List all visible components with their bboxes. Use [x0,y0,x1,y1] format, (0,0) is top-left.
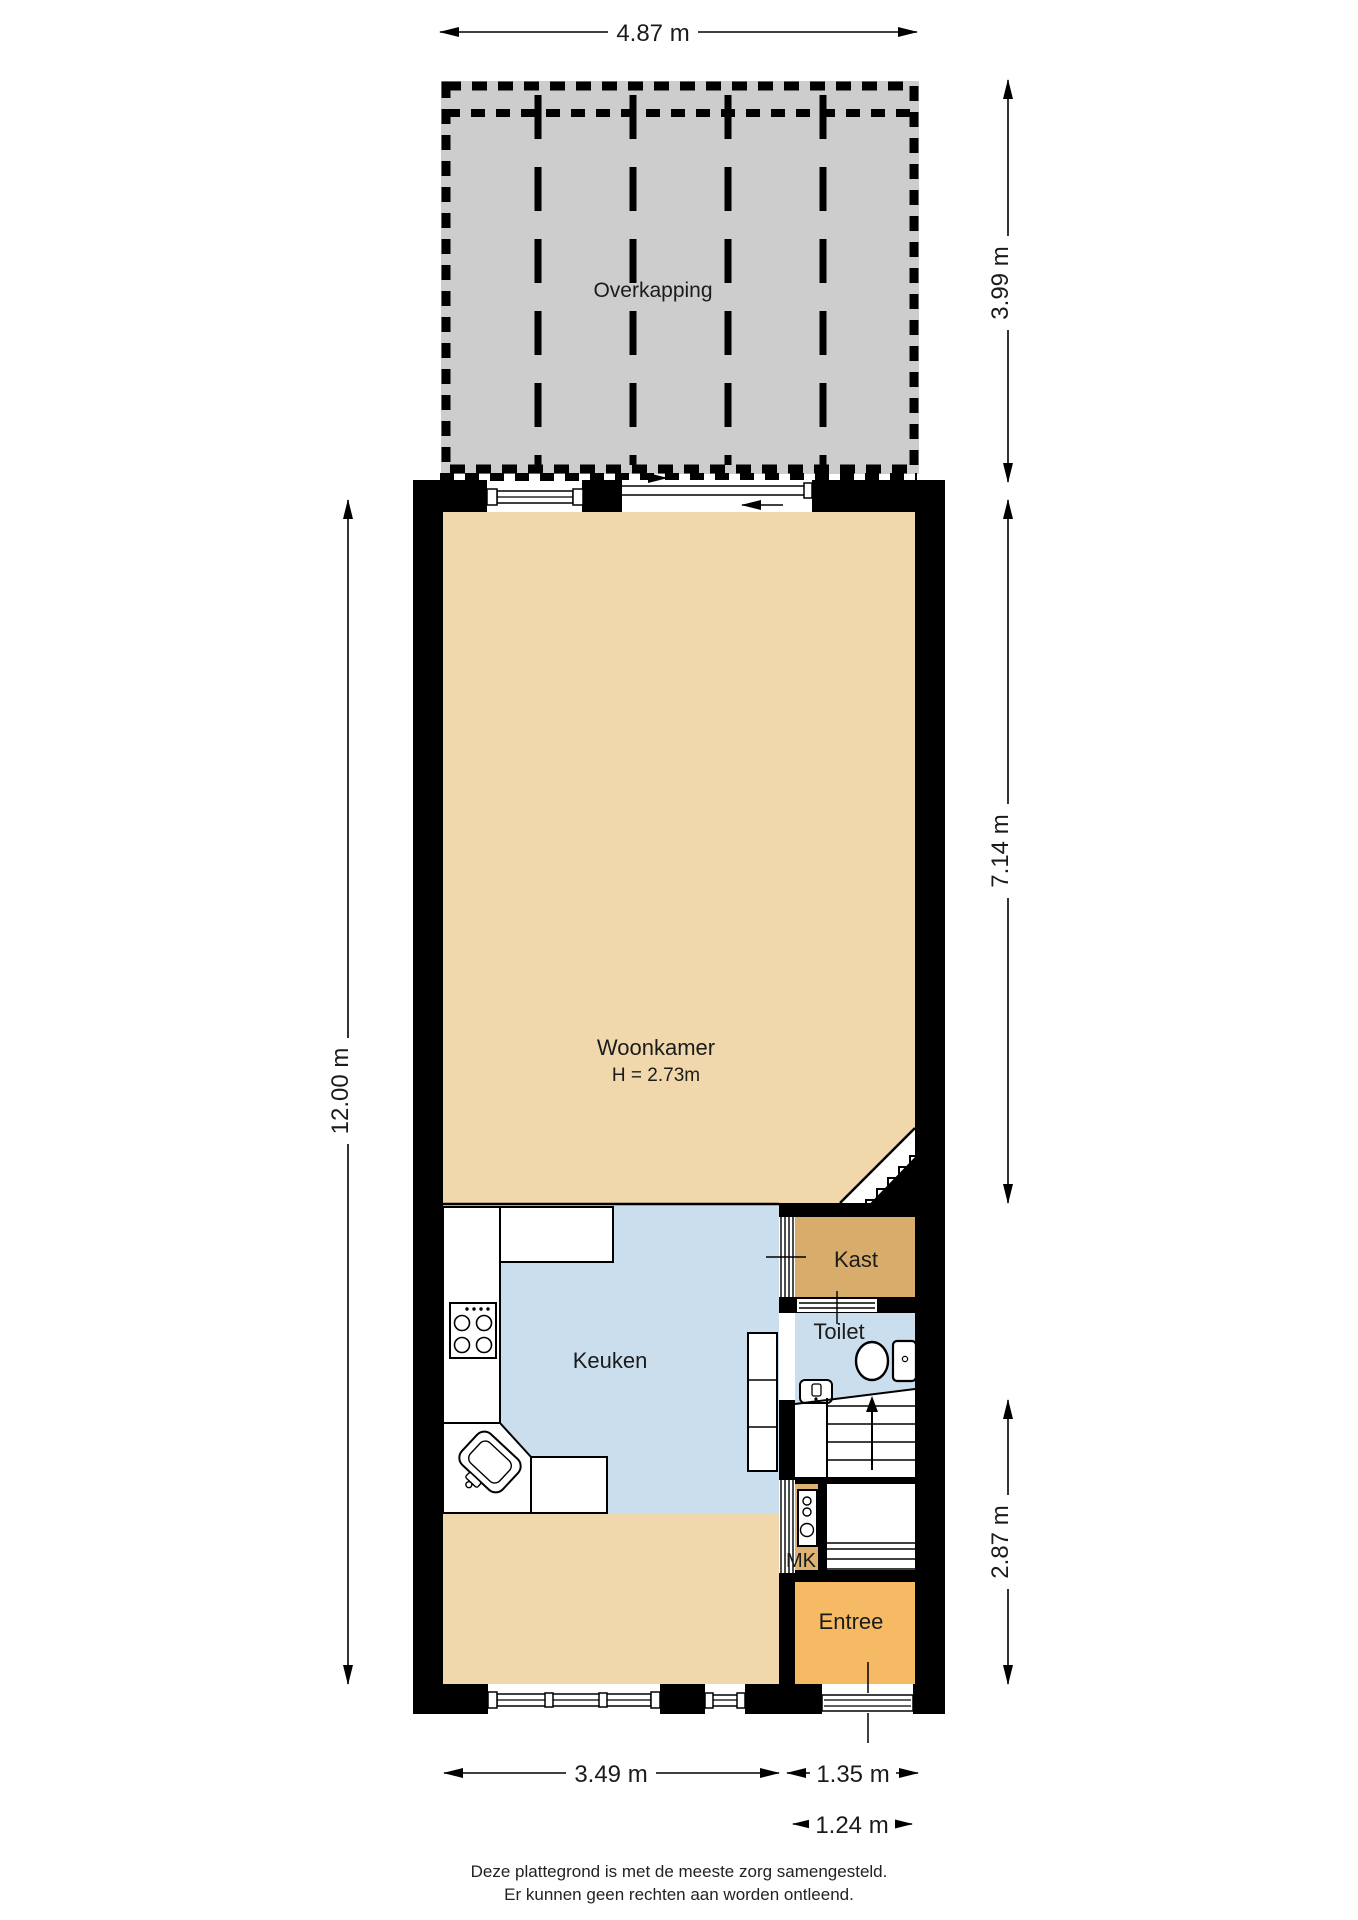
front-window-small [705,1690,745,1712]
room-woonkamer-height-note: H = 2.73m [612,1065,700,1086]
room-overkapping: Overkapping [440,81,919,477]
overkapping-floor [441,81,919,474]
room-toilet-label: Toilet [813,1319,864,1344]
dimension-woonkamer-depth: 7.14 m [987,500,1022,1203]
dimension-total-depth: 12.00 m [327,500,362,1684]
room-woonkamer [443,512,915,1203]
dimension-overkapping-depth-label: 3.99 m [987,246,1014,319]
dimension-bottom-left-width-label: 3.49 m [574,1761,647,1788]
dimension-front-door-width: 1.24 m [793,1810,912,1839]
dimension-top-width-label: 4.87 m [616,20,689,47]
dimension-total-depth-label: 12.00 m [327,1048,354,1135]
tall-cabinet [748,1333,777,1471]
dimension-woonkamer-depth-label: 7.14 m [987,814,1014,887]
dimension-bottom-right-width-label: 1.35 m [816,1761,889,1788]
room-entree-label: Entree [819,1609,884,1634]
floor-plan: 4.87 m 3.99 m 7.14 m 2.87 m 12.00 m 3.49… [0,0,1358,1920]
room-keuken-label: Keuken [573,1348,648,1373]
room-kast-label: Kast [834,1247,878,1272]
electrical-panel [798,1490,817,1546]
dimension-front-door-width-label: 1.24 m [815,1812,888,1839]
stove [450,1303,496,1358]
dimension-rear-depth-label: 2.87 m [987,1505,1014,1578]
rear-sliding-door [622,478,812,512]
front-window-large [488,1688,660,1712]
dimension-top-width: 4.87 m [440,18,917,47]
room-dining-area [443,1513,779,1684]
room-woonkamer-label: Woonkamer [597,1035,715,1060]
footer-disclaimer-line2: Er kunnen geen rechten aan worden ontlee… [504,1885,854,1904]
dimension-overkapping-depth: 3.99 m [987,80,1022,482]
stair-landing [827,1484,915,1570]
room-mk-label: MK [786,1550,817,1572]
room-overkapping-label: Overkapping [593,279,712,302]
rear-window [487,482,583,510]
floorplan-page: 4.87 m 3.99 m 7.14 m 2.87 m 12.00 m 3.49… [0,0,1358,1920]
dimension-rear-depth: 2.87 m [987,1400,1022,1684]
dimension-bottom-left-width: 3.49 m [444,1759,779,1788]
footer-disclaimer-line1: Deze plattegrond is met de meeste zorg s… [471,1862,888,1881]
dimension-bottom-right-width: 1.35 m [787,1759,918,1788]
